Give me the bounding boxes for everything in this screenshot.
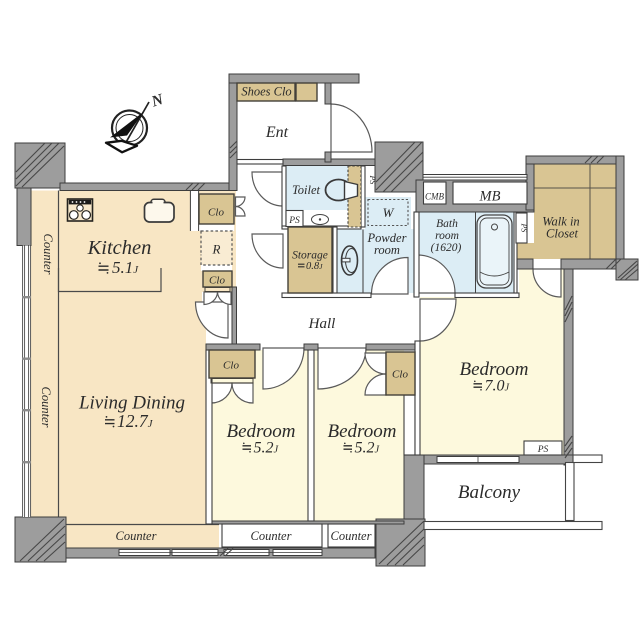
svg-text:PS: PS — [520, 223, 529, 233]
svg-text:R: R — [212, 242, 221, 257]
svg-text:room: room — [435, 230, 459, 242]
svg-text:MB: MB — [479, 189, 501, 205]
svg-text:Clo: Clo — [209, 275, 225, 287]
svg-text:Shoes Clo: Shoes Clo — [241, 85, 291, 99]
svg-text:Ent: Ent — [265, 124, 289, 141]
svg-text:PS: PS — [288, 216, 300, 226]
svg-text:CMB: CMB — [425, 192, 445, 202]
svg-text:PS: PS — [368, 175, 377, 185]
svg-text:room: room — [374, 243, 400, 257]
svg-text:Bath: Bath — [436, 218, 458, 230]
svg-text:(1620): (1620) — [431, 242, 462, 254]
svg-text:Toilet: Toilet — [292, 183, 321, 197]
svg-text:Clo: Clo — [208, 207, 224, 219]
svg-text:W: W — [383, 205, 395, 220]
svg-text:PS: PS — [537, 445, 549, 455]
svg-text:Clo: Clo — [392, 369, 408, 381]
svg-text:Counter: Counter — [39, 387, 53, 428]
svg-text:Storage: Storage — [292, 250, 328, 262]
svg-text:0.8J: 0.8J — [306, 261, 323, 272]
svg-text:Counter: Counter — [41, 234, 55, 275]
svg-text:Counter: Counter — [116, 529, 157, 543]
svg-text:Kitchen: Kitchen — [87, 237, 152, 259]
svg-text:Hall: Hall — [308, 316, 336, 332]
svg-text:Counter: Counter — [331, 529, 372, 543]
svg-text:Closet: Closet — [546, 227, 578, 241]
svg-text:Clo: Clo — [223, 360, 239, 372]
svg-text:Balcony: Balcony — [458, 482, 521, 503]
svg-text:Counter: Counter — [251, 529, 292, 543]
